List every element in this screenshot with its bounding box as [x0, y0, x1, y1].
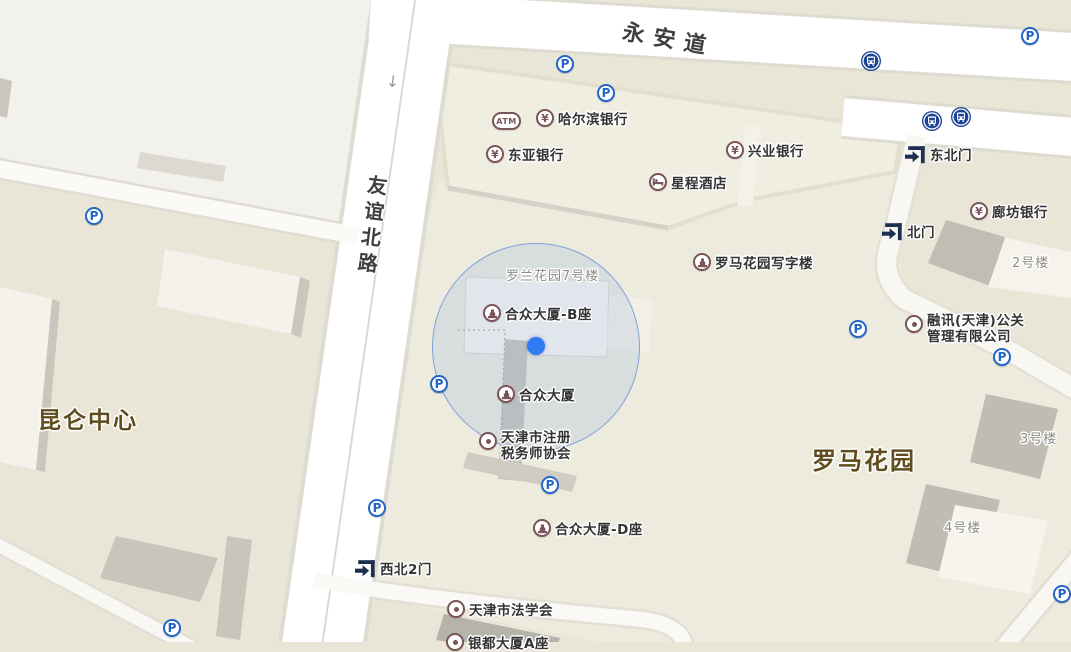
- poi-industrial-bank[interactable]: ¥ 兴业银行: [726, 140, 804, 160]
- walkway: [745, 126, 753, 206]
- poi-label: 天津市注册税务师协会: [501, 430, 571, 462]
- parking-icon[interactable]: P: [163, 619, 181, 637]
- poi-label: 银都大厦A座: [468, 632, 549, 652]
- poi-label: 合众大厦-B座: [505, 303, 592, 323]
- poi-label: 东北门: [930, 144, 972, 164]
- poi-roma-garden-office[interactable]: 罗马花园写字楼: [693, 252, 813, 272]
- poi-tax-agents-association[interactable]: 天津市注册税务师协会: [479, 430, 571, 462]
- office-building-icon: [693, 253, 711, 271]
- organization-dot-icon: [447, 600, 465, 618]
- bank-yuan-icon: ¥: [970, 202, 988, 220]
- company-dot-icon: [905, 315, 923, 333]
- poi-label: 西北2门: [380, 558, 432, 578]
- poi-label: 廊坊银行: [992, 201, 1048, 221]
- parking-icon[interactable]: P: [85, 207, 103, 225]
- parking-icon[interactable]: P: [849, 320, 867, 338]
- poi-langfang-bank[interactable]: ¥ 廊坊银行: [970, 201, 1048, 221]
- poi-label: 兴业银行: [748, 140, 804, 160]
- building-label-no4: 4号楼: [944, 517, 981, 536]
- poi-label: 东亚银行: [508, 144, 564, 164]
- map-viewport[interactable]: { "map": { "icons": { "parking": "P", "b…: [0, 0, 1071, 642]
- gate-icon: [905, 145, 926, 164]
- poi-starway-hotel[interactable]: 星程酒店: [649, 172, 727, 192]
- parking-icon[interactable]: P: [556, 55, 574, 73]
- oneway-arrow-icon: ↓: [385, 71, 401, 91]
- gate-icon: [882, 222, 903, 241]
- current-location-dot: [527, 337, 545, 355]
- poi-gate-northwest-2[interactable]: 西北2门: [355, 558, 432, 578]
- organization-dot-icon: [479, 432, 497, 450]
- parking-icon[interactable]: P: [1021, 27, 1039, 45]
- area-label-roma-garden: 罗马花园: [812, 441, 916, 476]
- bus-stop-icon[interactable]: [861, 51, 881, 71]
- office-building-icon: [497, 385, 515, 403]
- poi-gate-north[interactable]: 北门: [882, 221, 935, 241]
- poi-label: 融讯(天津)公关管理有限公司: [927, 313, 1024, 345]
- poi-label: 合众大厦-D座: [555, 518, 643, 538]
- poi-east-asia-bank[interactable]: ¥ 东亚银行: [486, 144, 564, 164]
- parking-icon[interactable]: P: [430, 375, 448, 393]
- building-dot-icon: [446, 633, 464, 651]
- office-building-icon: [483, 304, 501, 322]
- poi-label: 哈尔滨银行: [558, 108, 628, 128]
- poi-atm[interactable]: ATM: [492, 112, 521, 130]
- poi-label: 天津市法学会: [469, 599, 553, 619]
- hotel-icon: [649, 173, 667, 191]
- poi-hezhong-tower-b[interactable]: 合众大厦-B座: [483, 303, 592, 323]
- poi-yindu-building[interactable]: 银都大厦A座: [446, 632, 549, 652]
- poi-hezhong-tower-d[interactable]: 合众大厦-D座: [533, 518, 643, 538]
- poi-tianjin-law-society[interactable]: 天津市法学会: [447, 599, 553, 619]
- poi-label: 星程酒店: [671, 172, 727, 192]
- building-label-no2: 2号楼: [1012, 252, 1049, 271]
- bank-yuan-icon: ¥: [536, 109, 554, 127]
- poi-rongxun-company[interactable]: 融讯(天津)公关管理有限公司: [905, 313, 1024, 345]
- parking-icon[interactable]: P: [597, 84, 615, 102]
- parking-icon[interactable]: P: [1053, 585, 1071, 603]
- parking-icon[interactable]: P: [368, 499, 386, 517]
- bus-stop-icon[interactable]: [922, 111, 942, 131]
- parking-icon[interactable]: P: [541, 476, 559, 494]
- bank-yuan-icon: ¥: [486, 145, 504, 163]
- poi-harbin-bank[interactable]: ¥ 哈尔滨银行: [536, 108, 628, 128]
- building-label-no3: 3号楼: [1020, 428, 1057, 447]
- office-building-icon: [533, 519, 551, 537]
- poi-label: 合众大厦: [519, 384, 575, 404]
- bank-yuan-icon: ¥: [726, 141, 744, 159]
- area-label-kunlun-center: 昆仑中心: [38, 401, 138, 435]
- poi-label: 北门: [907, 221, 935, 241]
- poi-gate-northeast[interactable]: 东北门: [905, 144, 972, 164]
- building-label-luolan-7: 罗兰花园7号楼: [506, 265, 599, 284]
- road-yongan: [370, 15, 1071, 58]
- poi-label: 罗马花园写字楼: [715, 252, 813, 272]
- parking-icon[interactable]: P: [993, 348, 1011, 366]
- gate-icon: [355, 559, 376, 578]
- atm-icon: ATM: [492, 112, 521, 130]
- bus-stop-icon[interactable]: [951, 107, 971, 127]
- poi-hezhong-tower[interactable]: 合众大厦: [497, 384, 575, 404]
